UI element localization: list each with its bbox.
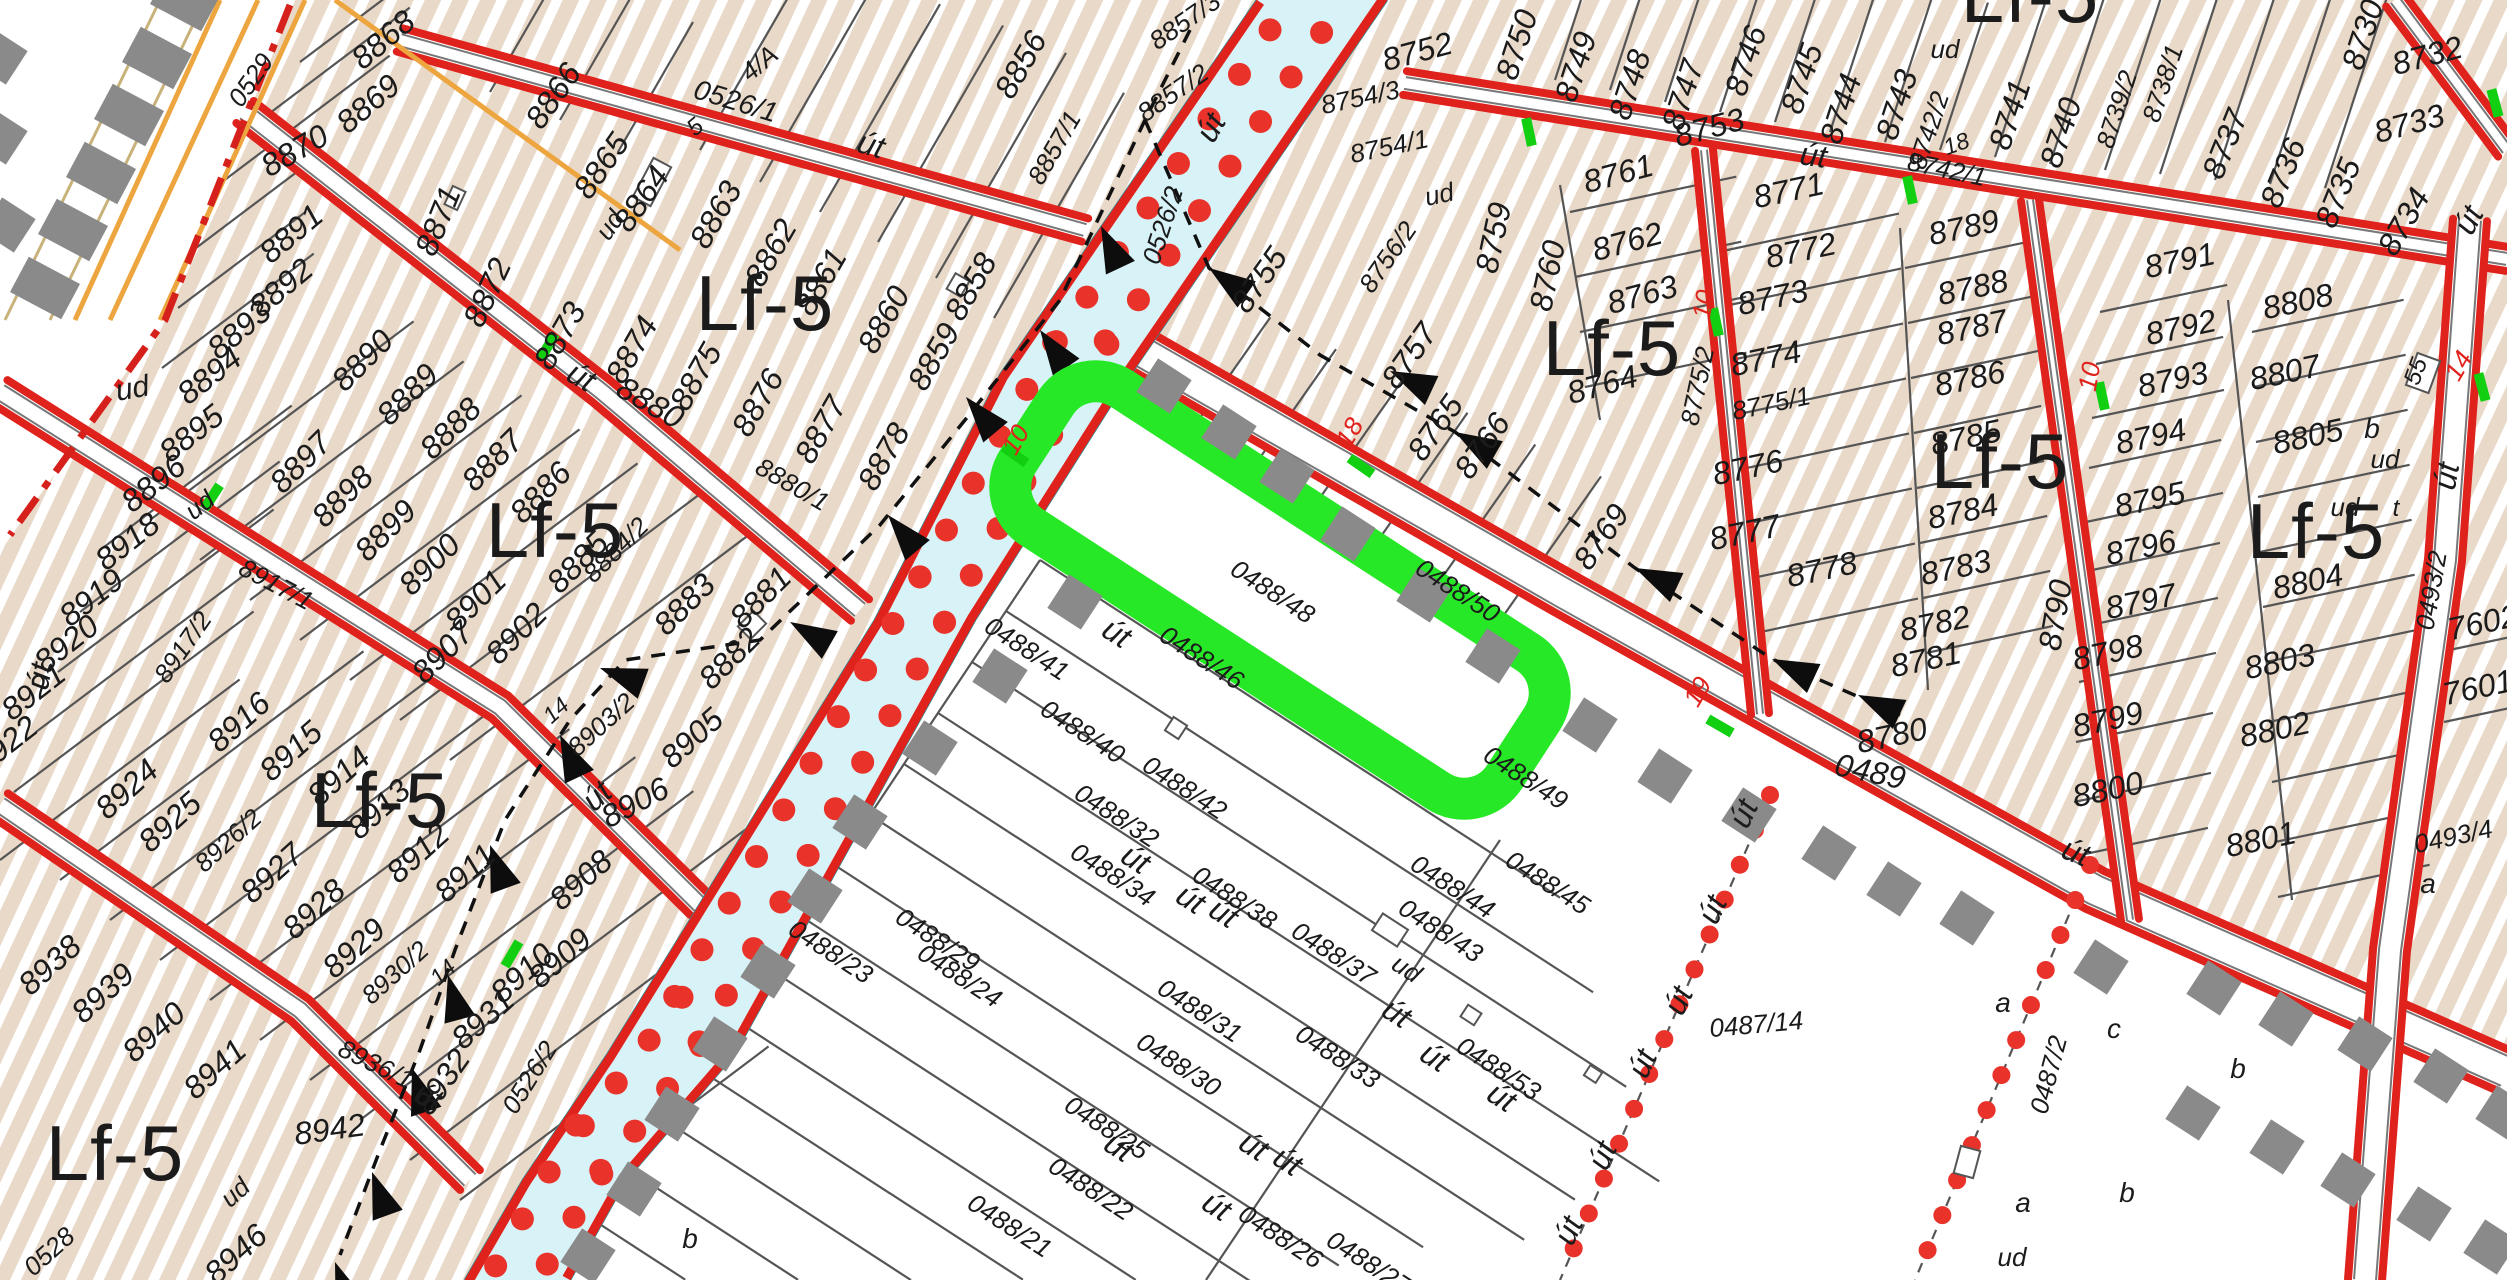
parcel-label: a xyxy=(1995,987,2011,1018)
road-number-label: 10 xyxy=(1686,287,1721,321)
parcel-label: út xyxy=(1267,1138,1310,1183)
parcel-label: b xyxy=(2230,1053,2246,1084)
parcel-label: 0488/40 xyxy=(1035,693,1131,770)
map-viewport: Lf-5Lf-5Lf-5Lf-5Lf-5Lf-5Lf-5Lf-505298868… xyxy=(0,0,2507,1280)
zone-label: Lf-5 xyxy=(46,1109,184,1197)
parcel-label: út xyxy=(1656,980,1700,1020)
road-number-label: 10 xyxy=(2072,359,2107,393)
parcel-label: 0487/14 xyxy=(1708,1005,1804,1043)
parcel-label: 0488/45 xyxy=(1500,844,1596,921)
parcel-label: ud xyxy=(1998,1242,2028,1272)
parcel-label: út xyxy=(1620,1043,1664,1083)
parcel-label: ud xyxy=(1931,34,1961,64)
parcel-label: 0487/2 xyxy=(2024,1032,2074,1117)
parcel-label: c xyxy=(2107,1013,2121,1044)
parcel-label: út xyxy=(1196,1183,1239,1228)
parcel-label: b xyxy=(682,1223,698,1254)
parcel-label: út xyxy=(1233,1123,1276,1168)
parcel-label: 0488/48 xyxy=(1225,553,1321,630)
parcel-label: 0488/37 xyxy=(1286,915,1382,992)
parcel-label: út xyxy=(1376,990,1419,1035)
parcel-label: 0488/42 xyxy=(1137,749,1233,826)
parcel-label: ud xyxy=(2371,444,2401,474)
zone-label: Lf-5 xyxy=(1961,0,2099,39)
parcel-label: b xyxy=(2119,1177,2135,1208)
parcel-label: 0488/27 xyxy=(1321,1224,1417,1280)
parcel-label: b xyxy=(2364,413,2380,444)
cadastral-map-canvas: Lf-5Lf-5Lf-5Lf-5Lf-5Lf-5Lf-5Lf-505298868… xyxy=(0,0,2507,1280)
parcel-label: út xyxy=(1414,1034,1457,1079)
parcel-label: 0488/31 xyxy=(1152,972,1247,1048)
parcel-label: 0488/23 xyxy=(783,913,879,990)
parcel-label: a xyxy=(2015,1187,2031,1218)
parcel-label: 0488/26 xyxy=(1233,1198,1329,1275)
parcel-label: a xyxy=(2420,868,2436,899)
parcel-label: ud xyxy=(2331,492,2361,522)
